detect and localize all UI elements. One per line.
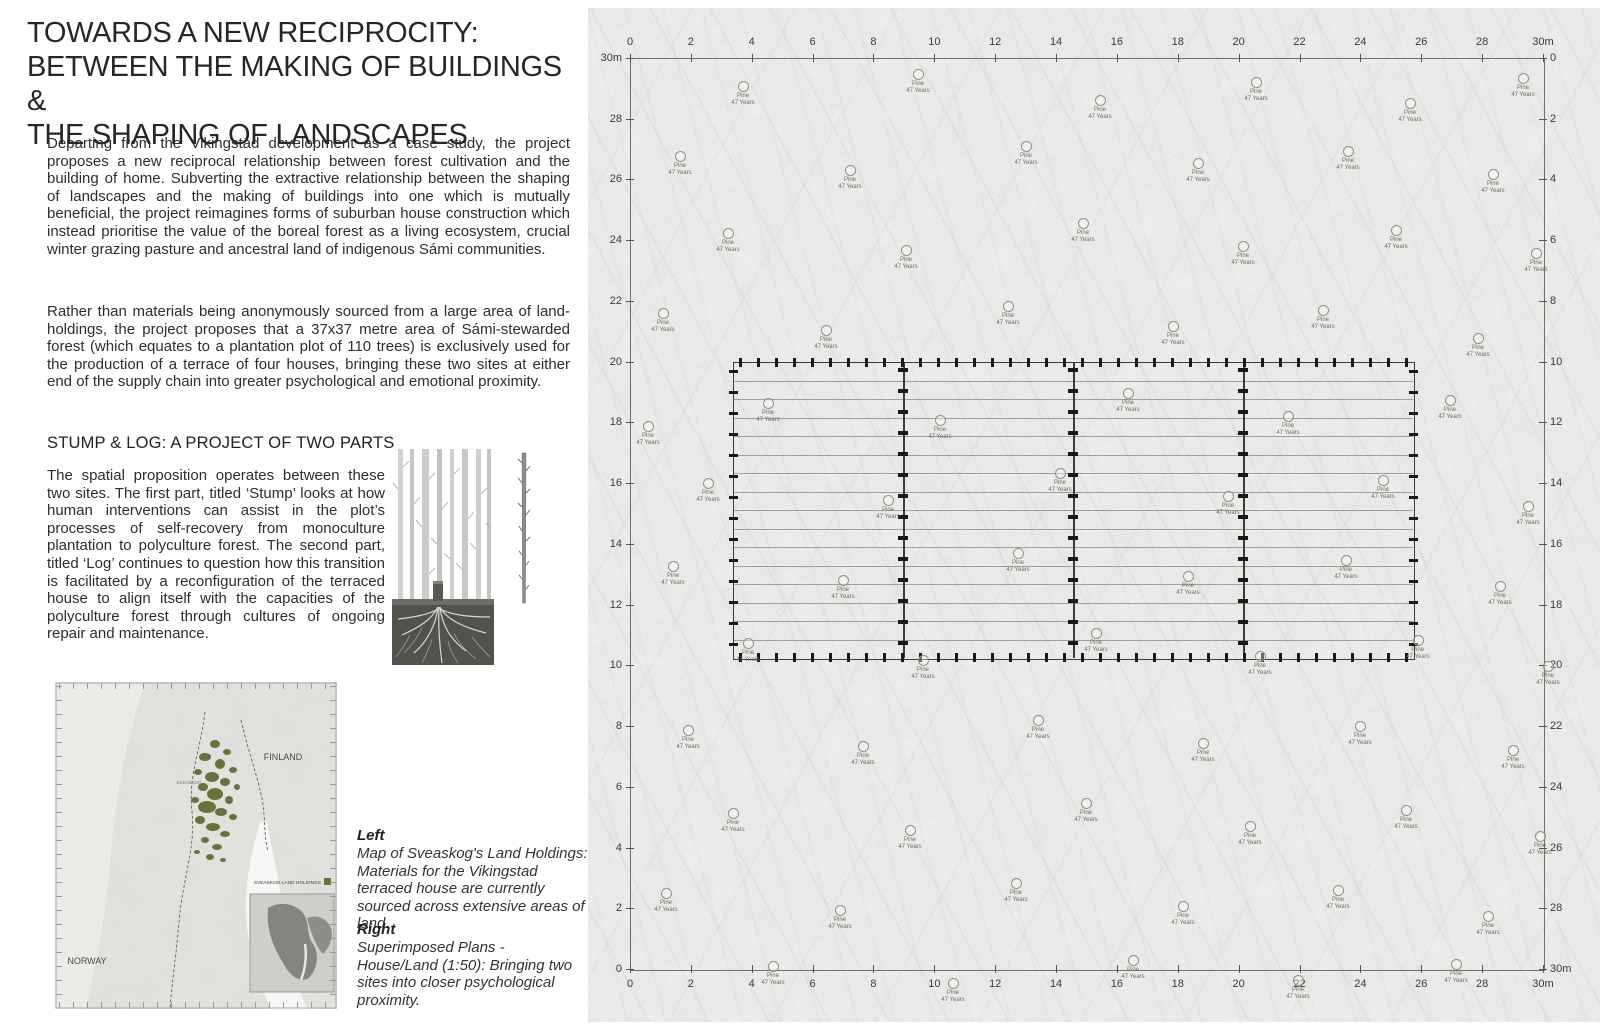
ruler-tick-right: [1539, 483, 1547, 484]
right-wall-stud: [1409, 454, 1418, 457]
top-wall-stud: [1261, 358, 1264, 367]
ruler-tick-right: [1539, 605, 1547, 606]
tree-circle: [675, 151, 686, 162]
ruler-tick-top: [1117, 54, 1118, 62]
tree-label: Pine47 Years: [1325, 158, 1371, 171]
tree-label: Pine47 Years: [1513, 260, 1559, 273]
top-wall-stud: [1243, 358, 1246, 367]
ruler-tick-left: [626, 969, 634, 970]
ruler-tick-top: [813, 54, 814, 62]
ruler-tick-right: [1539, 179, 1547, 180]
party-wall-stud: [898, 599, 908, 603]
tree-circle: [1013, 548, 1024, 559]
tree-label: Pine47 Years: [803, 337, 849, 350]
ruler-tick-top: [873, 54, 874, 62]
bottom-wall-stud: [811, 653, 814, 662]
party-wall-stud: [1238, 410, 1248, 414]
top-wall-stud: [1063, 358, 1066, 367]
tree-circle: [1451, 959, 1462, 970]
ruler-label-top: 10: [917, 36, 951, 48]
top-wall-stud: [1171, 358, 1174, 367]
ruler-tick-bottom: [995, 965, 996, 973]
tree-label: Pine47 Years: [685, 490, 731, 503]
tree-circle: [838, 575, 849, 586]
ruler-tick-left: [626, 362, 634, 363]
top-wall-stud: [1351, 358, 1354, 367]
ruler-tick-bottom: [691, 965, 692, 973]
party-wall-stud: [1238, 557, 1248, 561]
ruler-label-left: 24: [590, 234, 622, 246]
tree-circle: [1128, 955, 1139, 966]
party-wall-stud: [1068, 599, 1078, 603]
tree-label: Pine47 Years: [1395, 647, 1441, 660]
ruler-label-left: 16: [590, 477, 622, 489]
right-wall-stud: [1409, 475, 1418, 478]
tree-circle: [1178, 901, 1189, 912]
tree-label: Pine47 Years: [1105, 400, 1151, 413]
tree-label: Pine47 Years: [1465, 923, 1511, 936]
right-wall-stud: [1409, 412, 1418, 415]
tree-circle: [683, 725, 694, 736]
ruler-tick-top: [1178, 54, 1179, 62]
tree-circle: [658, 308, 669, 319]
tree-label: Pine47 Years: [1337, 733, 1383, 746]
tree-label: Pine47 Years: [705, 240, 751, 253]
top-wall-stud: [1153, 358, 1156, 367]
tree-circle: [858, 741, 869, 752]
top-wall-stud: [1369, 358, 1372, 367]
tree-circle: [1245, 821, 1256, 832]
ruler-label-bottom: 18: [1161, 978, 1195, 990]
tree-circle: [1333, 885, 1344, 896]
presentation-board: TOWARDS A NEW RECIPROCITY: BETWEEN THE M…: [0, 0, 1600, 1029]
ruler-label-top: 20: [1222, 36, 1256, 48]
bottom-wall-stud: [775, 653, 778, 662]
top-wall-stud: [1333, 358, 1336, 367]
ruler-tick-bottom: [752, 965, 753, 973]
ruler-tick-top: [1360, 54, 1361, 62]
tree-circle: [835, 905, 846, 916]
ruler-label-top: 24: [1343, 36, 1377, 48]
tree-circle: [1293, 975, 1304, 986]
left-wall-stud: [729, 454, 738, 457]
party-wall-stud: [1068, 473, 1078, 477]
tree-label: Pine47 Years: [1387, 110, 1433, 123]
right-wall-stud: [1409, 433, 1418, 436]
soil-section: [392, 605, 494, 665]
tree-label: Pine47 Years: [1455, 345, 1501, 358]
party-wall-stud: [1068, 536, 1078, 540]
tree-circle: [1198, 738, 1209, 749]
tree-circle: [883, 495, 894, 506]
tree-circle: [1391, 225, 1402, 236]
right-wall-stud: [1409, 601, 1418, 604]
top-wall-stud: [739, 358, 742, 367]
caption-right-label: Right: [357, 921, 395, 938]
tree-circle: [1405, 98, 1416, 109]
tree-circle: [1401, 805, 1412, 816]
right-wall-stud: [1409, 496, 1418, 499]
tree-label: Pine47 Years: [887, 837, 933, 850]
ruler-label-top: 28: [1465, 36, 1499, 48]
top-wall-stud: [1387, 358, 1390, 367]
top-wall-stud: [775, 358, 778, 367]
ruler-label-top: 2: [674, 36, 708, 48]
land-holdings-map: FINLAND NORWAY SVEASKOG SVEASKOG LAND HO…: [55, 682, 337, 1009]
left-wall-stud: [729, 538, 738, 541]
right-wall-stud: [1409, 391, 1418, 394]
party-wall-stud: [1238, 368, 1248, 372]
left-wall-stud: [729, 622, 738, 625]
tree-label: Pine47 Years: [1300, 317, 1346, 330]
map-legend-label: SVEASKOG LAND HOLDINGS: [254, 880, 321, 886]
party-wall-stud: [898, 410, 908, 414]
bottom-wall-stud: [829, 653, 832, 662]
top-wall-stud: [1405, 358, 1408, 367]
bottom-wall-stud: [901, 653, 904, 662]
tree-label: Pine47 Years: [1150, 333, 1196, 346]
tree-circle: [1518, 73, 1529, 84]
tree-circle: [1543, 661, 1554, 672]
tree-label: Pine47 Years: [1265, 423, 1311, 436]
bottom-wall-stud: [1315, 653, 1318, 662]
ruler-tick-left: [626, 726, 634, 727]
right-wall-stud: [1409, 370, 1418, 373]
top-wall-stud: [1207, 358, 1210, 367]
caption-left-label: Left: [357, 827, 385, 844]
ruler-tick-top: [1421, 54, 1422, 62]
tree-label: Pine47 Years: [710, 820, 756, 833]
ruler-tick-left: [626, 665, 634, 666]
top-wall-stud: [757, 358, 760, 367]
essay-paragraph-2: Rather than materials being anonymously …: [47, 303, 570, 391]
map-legend-swatch: [324, 878, 331, 885]
tree-label: Pine47 Years: [985, 313, 1031, 326]
ruler-label-top: 18: [1161, 36, 1195, 48]
ruler-tick-left: [626, 908, 634, 909]
bottom-wall-stud: [1099, 653, 1102, 662]
tree-circle: [668, 561, 679, 572]
ruler-label-left: 12: [590, 599, 622, 611]
ruler-tick-right: [1539, 240, 1547, 241]
ruler-tick-top: [752, 54, 753, 62]
bottom-wall-stud: [1333, 653, 1336, 662]
right-wall-stud: [1409, 559, 1418, 562]
tree-label: Pine47 Years: [1500, 85, 1546, 98]
tree-circle: [821, 325, 832, 336]
bottom-wall-stud: [937, 653, 940, 662]
top-wall-stud: [1279, 358, 1282, 367]
ruler-tick-bottom: [1178, 965, 1179, 973]
left-wall-stud: [729, 370, 738, 373]
tree-label: Pine47 Years: [640, 320, 686, 333]
right-wall-stud: [1409, 538, 1418, 541]
party-wall-stud: [898, 536, 908, 540]
tree-label: Pine47 Years: [725, 650, 771, 663]
tree-circle: [1021, 141, 1032, 152]
tree-label: Pine47 Years: [1227, 833, 1273, 846]
party-wall-stud: [1068, 431, 1078, 435]
ruler-label-left: 8: [590, 720, 622, 732]
tree-label: Pine47 Years: [1037, 480, 1083, 493]
top-wall-stud: [829, 358, 832, 367]
tree-circle: [1531, 248, 1542, 259]
caption-right-text: Superimposed Plans - House/Land (1:50): …: [357, 939, 589, 1009]
tree-circle: [1078, 218, 1089, 229]
bottom-wall-stud: [1351, 653, 1354, 662]
tree-circle: [1508, 745, 1519, 756]
ruler-label-right: 12: [1550, 416, 1584, 428]
ruler-label-left: 14: [590, 538, 622, 550]
party-wall-stud: [898, 557, 908, 561]
party-wall-stud: [1238, 578, 1248, 582]
tree-circle: [935, 415, 946, 426]
ruler-tick-right: [1539, 362, 1547, 363]
ruler-label-top: 4: [735, 36, 769, 48]
party-wall-stud: [1238, 389, 1248, 393]
ruler-label-right: 24: [1550, 781, 1584, 793]
tree-label: Pine47 Years: [1220, 253, 1266, 266]
left-wall-stud: [729, 412, 738, 415]
tree-circle: [643, 421, 654, 432]
ruler-tick-left: [626, 483, 634, 484]
title-line-1: TOWARDS A NEW RECIPROCITY:: [27, 16, 572, 50]
tree-circle: [1343, 146, 1354, 157]
ruler-tick-right: [1539, 301, 1547, 302]
top-wall-stud: [973, 358, 976, 367]
ruler-label-top: 30m: [1526, 36, 1560, 48]
bottom-wall-stud: [1369, 653, 1372, 662]
tree-circle: [738, 81, 749, 92]
ruler-tick-right: [1539, 908, 1547, 909]
ruler-label-bottom: 20: [1222, 978, 1256, 990]
tree-label: Pine47 Years: [1233, 89, 1279, 102]
ruler-label-left: 28: [590, 113, 622, 125]
ruler-label-left: 30m: [590, 52, 622, 64]
page-title: TOWARDS A NEW RECIPROCITY: BETWEEN THE M…: [27, 16, 572, 152]
left-wall-stud: [729, 517, 738, 520]
tree-circle: [901, 245, 912, 256]
tree-label: Pine47 Years: [643, 900, 689, 913]
tree-label: Pine47 Years: [1205, 503, 1251, 516]
ruler-label-top: 26: [1404, 36, 1438, 48]
superimposed-plan-drawing: 0030m02228244264662468822810102010121218…: [588, 8, 1600, 1022]
left-wall-stud: [729, 580, 738, 583]
bottom-wall-stud: [1081, 653, 1084, 662]
tree-circle: [1183, 571, 1194, 582]
left-wall-stud: [729, 643, 738, 646]
top-wall-stud: [1225, 358, 1228, 367]
ruler-tick-top: [995, 54, 996, 62]
tree-label: Pine47 Years: [750, 973, 796, 986]
ruler-tick-bottom: [1360, 965, 1361, 973]
bottom-wall-stud: [1225, 653, 1228, 662]
ruler-label-right: 0: [1550, 52, 1584, 64]
tree-circle: [1123, 388, 1134, 399]
tree-label: Pine47 Years: [1323, 567, 1369, 580]
top-wall-stud: [1315, 358, 1318, 367]
party-wall: [1073, 362, 1075, 658]
ruler-label-right: 22: [1550, 720, 1584, 732]
ruler-label-right: 14: [1550, 477, 1584, 489]
tree-circle: [703, 478, 714, 489]
tree-label: Pine47 Years: [745, 410, 791, 423]
ruler-tick-left: [626, 119, 634, 120]
right-wall-stud: [1409, 580, 1418, 583]
tree-label: Pine47 Years: [865, 507, 911, 520]
ruler-label-right: 10: [1550, 356, 1584, 368]
ruler-label-top: 6: [796, 36, 830, 48]
ruler-label-left: 22: [590, 295, 622, 307]
party-wall-stud: [898, 578, 908, 582]
tree-label: Pine47 Years: [1073, 640, 1119, 653]
party-wall-stud: [898, 473, 908, 477]
tree-label: Pine47 Years: [817, 917, 863, 930]
ruler-tick-top: [1482, 54, 1483, 62]
ruler-tick-right: [1539, 969, 1547, 970]
ruler-label-bottom: 10: [917, 978, 951, 990]
bottom-wall-stud: [865, 653, 868, 662]
tree-label: Pine47 Years: [895, 81, 941, 94]
top-wall-stud: [1189, 358, 1192, 367]
tree-circle: [1445, 395, 1456, 406]
ruler-label-right: 4: [1550, 173, 1584, 185]
tree-circle: [948, 978, 959, 989]
ruler-label-right: 16: [1550, 538, 1584, 550]
bottom-wall-stud: [991, 653, 994, 662]
bottom-wall-stud: [847, 653, 850, 662]
top-wall-stud: [1117, 358, 1120, 367]
ruler-tick-right: [1539, 726, 1547, 727]
ruler-tick-left: [626, 301, 634, 302]
right-wall-stud: [1409, 622, 1418, 625]
party-wall-stud: [1238, 620, 1248, 624]
ruler-label-bottom: 24: [1343, 978, 1377, 990]
ruler-label-top: 16: [1100, 36, 1134, 48]
map-label-norway: NORWAY: [67, 956, 106, 966]
top-wall-stud: [865, 358, 868, 367]
party-wall-stud: [1238, 641, 1248, 645]
tree-circle: [1495, 581, 1506, 592]
left-wall-stud: [729, 475, 738, 478]
bottom-wall-stud: [1117, 653, 1120, 662]
ruler-label-left: 10: [590, 659, 622, 671]
party-wall-stud: [898, 389, 908, 393]
tree-circle: [918, 655, 929, 666]
ruler-tick-left: [626, 605, 634, 606]
ruler-label-top: 22: [1283, 36, 1317, 48]
ruler-tick-right: [1539, 787, 1547, 788]
tree-circle: [905, 825, 916, 836]
tree-circle: [913, 69, 924, 80]
ruler-tick-top: [1300, 54, 1301, 62]
party-wall-stud: [1068, 557, 1078, 561]
left-wall-stud: [729, 601, 738, 604]
ruler-tick-bottom: [1239, 965, 1240, 973]
bottom-wall-stud: [1063, 653, 1066, 662]
title-line-2: BETWEEN THE MAKING OF BUILDINGS &: [27, 50, 572, 118]
top-wall-stud: [991, 358, 994, 367]
tree-label: Pine47 Years: [1063, 810, 1109, 823]
log-illustration: [516, 451, 532, 605]
tree-circle: [1488, 169, 1499, 180]
top-wall-stud: [1027, 358, 1030, 367]
party-wall-stud: [1238, 473, 1248, 477]
ruler-tick-top: [934, 54, 935, 62]
top-wall-stud: [793, 358, 796, 367]
ruler-tick-left: [626, 240, 634, 241]
tree-label: Pine47 Years: [1433, 971, 1479, 984]
ruler-label-bottom: 12: [978, 978, 1012, 990]
tree-label: Pine47 Years: [1003, 153, 1049, 166]
essay-paragraph-3: The spatial proposition operates between…: [47, 467, 385, 643]
tree-circle: [661, 888, 672, 899]
tree-circle: [763, 398, 774, 409]
map-label-region: SVEASKOG: [176, 780, 202, 785]
tree-label: Pine47 Years: [1525, 673, 1571, 686]
party-wall-stud: [898, 368, 908, 372]
tree-label: Pine47 Years: [1470, 181, 1516, 194]
top-wall-stud: [901, 358, 904, 367]
map-label-finland: FINLAND: [264, 752, 303, 762]
tree-label: Pine47 Years: [1165, 583, 1211, 596]
tree-label: Pine47 Years: [1383, 817, 1429, 830]
tree-label: Pine47 Years: [1175, 170, 1221, 183]
tree-label: Pine47 Years: [820, 587, 866, 600]
ruler-tick-top: [1239, 54, 1240, 62]
tree-circle: [1255, 651, 1266, 662]
top-wall-stud: [1009, 358, 1012, 367]
tree-circle: [1238, 241, 1249, 252]
ruler-label-right: 6: [1550, 234, 1584, 246]
party-wall-stud: [1238, 452, 1248, 456]
tree-label: Pine47 Years: [1505, 513, 1551, 526]
tree-circle: [1355, 721, 1366, 732]
top-wall-stud: [883, 358, 886, 367]
bottom-wall-stud: [883, 653, 886, 662]
bottom-wall-stud: [1009, 653, 1012, 662]
ruler-tick-bottom: [1421, 965, 1422, 973]
party-wall-stud: [1238, 536, 1248, 540]
tree-label: Pine47 Years: [827, 177, 873, 190]
top-wall-stud: [1045, 358, 1048, 367]
tree-label: Pine47 Years: [665, 737, 711, 750]
tree-label: Pine47 Years: [650, 573, 696, 586]
ruler-label-top: 12: [978, 36, 1012, 48]
ruler-tick-bottom: [1056, 965, 1057, 973]
stump-illustration: [392, 449, 494, 665]
ruler-label-right: 28: [1550, 902, 1584, 914]
ruler-label-bottom: 14: [1039, 978, 1073, 990]
party-wall-stud: [1068, 410, 1078, 414]
left-wall-stud: [729, 433, 738, 436]
tree-label: Pine47 Years: [1427, 407, 1473, 420]
section-subheading: STUMP & LOG: A PROJECT OF TWO PARTS: [47, 434, 394, 453]
bottom-wall-stud: [1045, 653, 1048, 662]
tree-label: Pine47 Years: [1077, 107, 1123, 120]
tree-circle: [1095, 95, 1106, 106]
tree-label: Pine47 Years: [1160, 913, 1206, 926]
tree-circle: [1223, 491, 1234, 502]
ruler-label-right: 8: [1550, 295, 1584, 307]
tree-label: Pine47 Years: [840, 753, 886, 766]
party-wall-stud: [1238, 494, 1248, 498]
ruler-tick-top: [691, 54, 692, 62]
party-wall-stud: [1238, 599, 1248, 603]
tree-circle: [728, 808, 739, 819]
top-wall-stud: [811, 358, 814, 367]
tree-label: Pine47 Years: [1360, 487, 1406, 500]
